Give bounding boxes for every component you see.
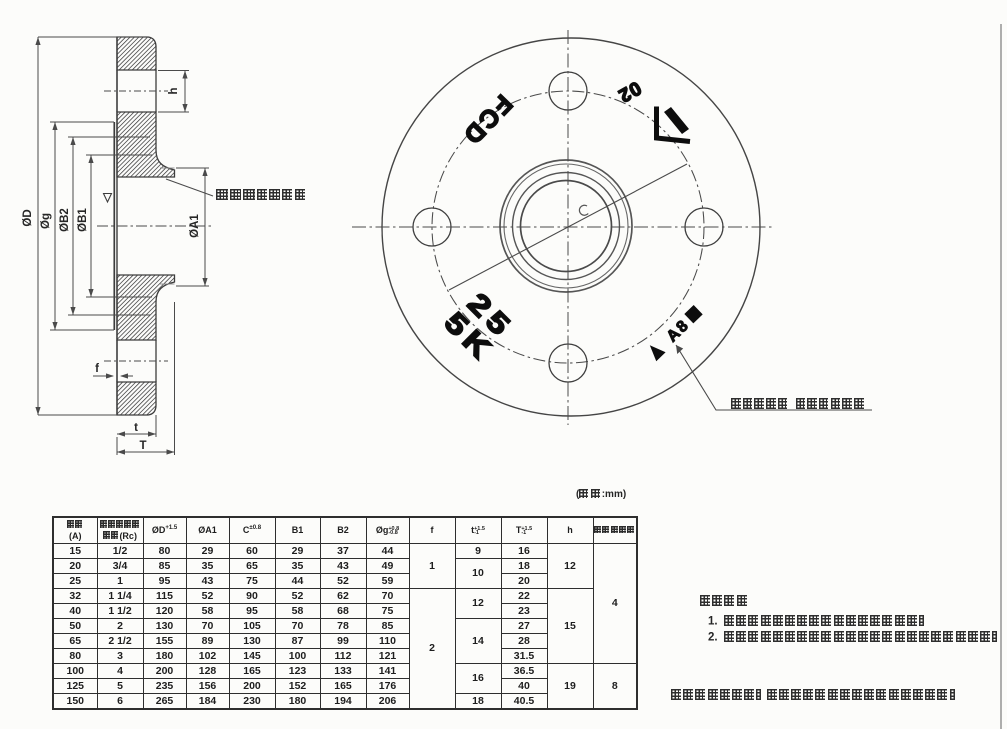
- svg-text:T: T: [139, 440, 146, 452]
- svg-text:t: t: [134, 422, 138, 434]
- svg-text:ØB1: ØB1: [77, 208, 89, 232]
- svg-text:A8: A8: [664, 316, 693, 345]
- svg-text:ØA1: ØA1: [189, 214, 201, 238]
- svg-text:ØD: ØD: [22, 209, 34, 226]
- svg-text:Øg: Øg: [40, 213, 52, 229]
- svg-text:ØB2: ØB2: [59, 208, 71, 232]
- svg-text:FCD: FCD: [456, 89, 517, 151]
- svg-text:h: h: [168, 87, 180, 94]
- svg-text:02: 02: [614, 77, 644, 107]
- svg-text:f: f: [95, 363, 99, 375]
